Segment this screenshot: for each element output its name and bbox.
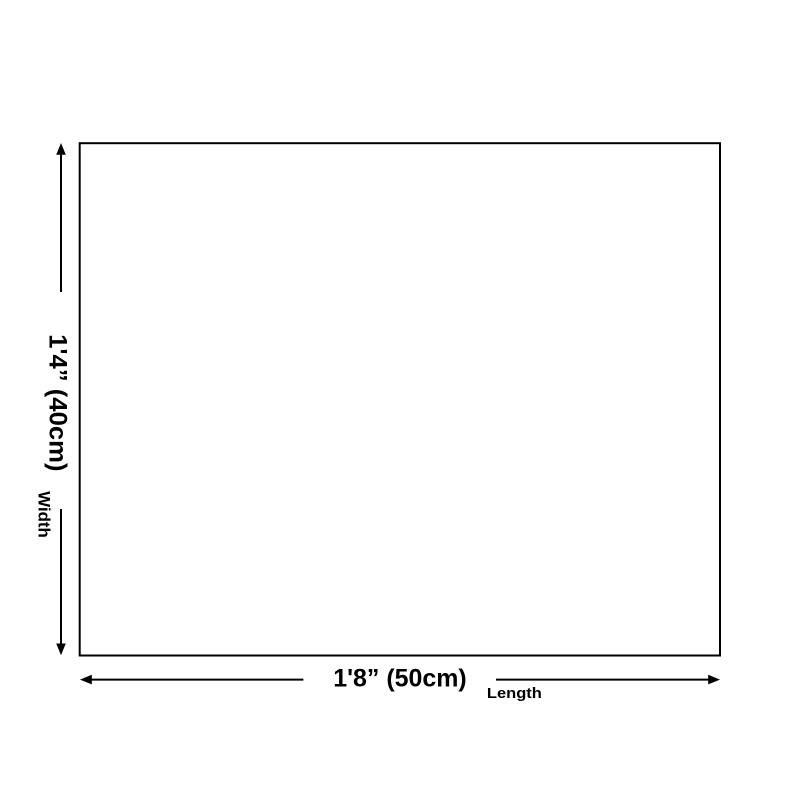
svg-text:Length: Length [487, 685, 542, 702]
svg-text:1'8” (50cm): 1'8” (50cm) [333, 665, 467, 693]
svg-text:Width: Width [35, 491, 54, 538]
svg-text:1'4” (40cm): 1'4” (40cm) [43, 334, 71, 472]
